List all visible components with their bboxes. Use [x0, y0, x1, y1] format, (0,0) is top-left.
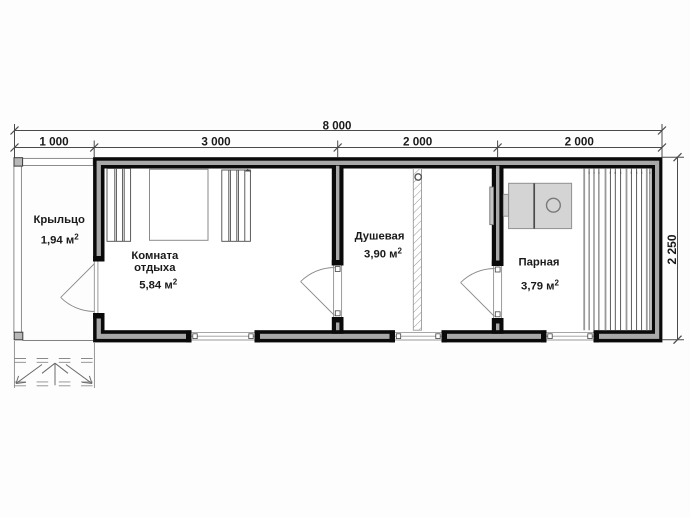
svg-text:3,90 м2: 3,90 м2: [364, 247, 402, 261]
svg-text:отдыха: отдыха: [134, 262, 176, 274]
svg-text:2 250: 2 250: [665, 234, 679, 264]
svg-text:8 000: 8 000: [323, 120, 352, 132]
svg-text:2 000: 2 000: [565, 136, 595, 149]
svg-text:2 000: 2 000: [403, 136, 433, 149]
svg-text:Крыльцо: Крыльцо: [33, 214, 85, 226]
svg-text:3,79 м2: 3,79 м2: [521, 278, 559, 292]
svg-text:Комната: Комната: [131, 250, 179, 262]
svg-text:Парная: Парная: [518, 256, 559, 268]
svg-text:1 000: 1 000: [39, 136, 69, 149]
svg-text:Душевая: Душевая: [355, 230, 405, 242]
svg-text:3 000: 3 000: [201, 136, 231, 149]
svg-text:5,84 м2: 5,84 м2: [139, 278, 177, 292]
svg-text:1,94 м2: 1,94 м2: [41, 232, 79, 246]
